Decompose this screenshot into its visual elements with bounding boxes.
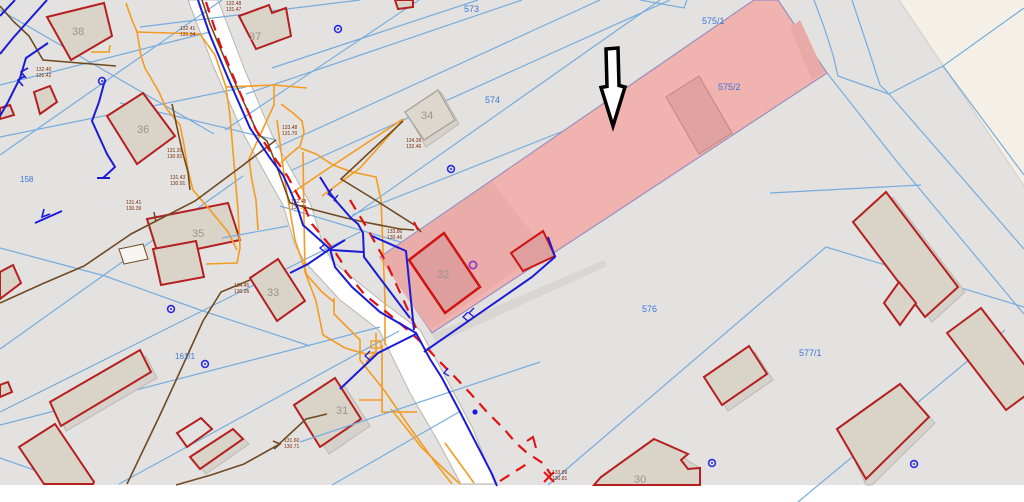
svg-text:130.81: 130.81 [552,476,568,482]
svg-text:36: 36 [137,124,149,136]
svg-text:38: 38 [72,26,84,38]
svg-text:130.05: 130.05 [234,289,250,295]
svg-text:131.42: 131.42 [36,73,52,79]
svg-text:130.91: 130.91 [167,154,183,160]
svg-text:131.70: 131.70 [291,205,307,211]
svg-text:132.46: 132.46 [406,144,422,150]
svg-text:575/2: 575/2 [718,82,741,92]
svg-text:131.34: 131.34 [180,32,196,38]
svg-text:131.70: 131.70 [282,131,298,137]
svg-text:37: 37 [249,31,261,43]
svg-text:574: 574 [485,95,500,105]
svg-text:34: 34 [421,110,433,122]
svg-text:130.39: 130.39 [126,206,142,212]
svg-text:158: 158 [20,175,34,184]
svg-text:33: 33 [267,287,279,299]
svg-text:130.91: 130.91 [170,181,186,187]
svg-text:130.71: 130.71 [284,444,300,450]
svg-text:32: 32 [437,269,449,281]
svg-text:130.46: 130.46 [387,235,403,241]
svg-text:577/1: 577/1 [799,348,822,358]
svg-text:131.47: 131.47 [226,7,242,13]
svg-text:575/1: 575/1 [702,16,725,26]
svg-text:30: 30 [634,474,646,486]
svg-text:35: 35 [192,228,204,240]
svg-text:161/1: 161/1 [175,352,196,361]
svg-text:573: 573 [464,4,479,14]
svg-text:576: 576 [642,304,657,314]
svg-text:31: 31 [336,405,348,417]
